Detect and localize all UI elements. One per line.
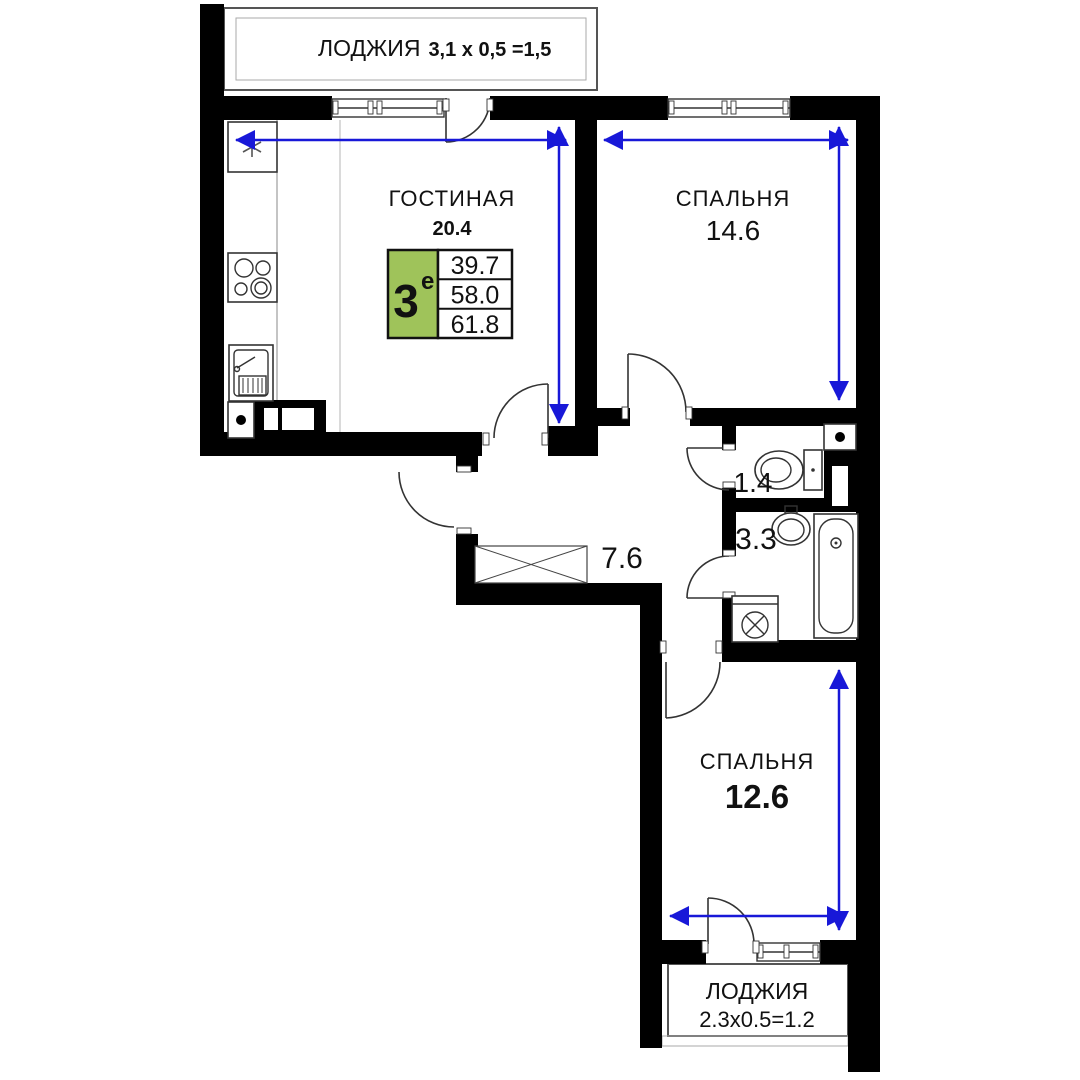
door-jamb <box>542 433 548 445</box>
bedroom1-name: СПАЛЬНЯ <box>676 186 791 211</box>
loggia-top-name: ЛОДЖИЯ <box>318 35 420 61</box>
bathtub-icon <box>814 514 858 638</box>
bathroom-area: 3.3 <box>735 523 777 556</box>
wall-bedroom2-bottom-b <box>820 940 856 964</box>
window-bedroom2 <box>757 943 820 961</box>
loggia-bottom-outline <box>662 964 848 1046</box>
door-bedroom2 <box>660 641 722 718</box>
living-room-area: 20.4 <box>433 218 473 240</box>
window-cap <box>333 101 338 114</box>
door-swing-arc <box>446 98 490 142</box>
floor-number-sup: е <box>421 268 434 295</box>
wall-top-b <box>490 96 668 120</box>
window-mullion <box>722 101 727 114</box>
door-jamb <box>457 466 471 472</box>
area-value-apartment: 58.0 <box>451 282 500 310</box>
wardrobe-icon <box>475 546 587 583</box>
area-value-total: 61.8 <box>451 311 500 339</box>
door-jamb <box>622 407 628 419</box>
door-swing-arc <box>628 354 686 412</box>
door-bathroom <box>687 550 735 598</box>
washing-machine-icon <box>732 596 778 642</box>
door-jamb <box>723 444 735 450</box>
wall-top-a <box>200 96 332 120</box>
loggia-bottom-name: ЛОДЖИЯ <box>706 978 808 1004</box>
window-cap <box>437 101 442 114</box>
bedroom2-area: 12.6 <box>725 778 789 815</box>
stove-body <box>228 253 277 302</box>
loggia-top-label: ЛОДЖИЯ3,1 х 0,5 =1,5 <box>318 35 551 61</box>
door-jamb <box>702 941 708 953</box>
wall-bath-a <box>722 510 736 556</box>
wall-bedroom2-top <box>722 640 880 662</box>
living-room-name: ГОСТИНАЯ <box>389 186 516 211</box>
loggia-bottom-parapet <box>662 1036 848 1046</box>
window-bedroom1 <box>668 99 790 117</box>
door-balcony-bedroom2 <box>702 898 759 953</box>
room-labels: ЛОДЖИЯ3,1 х 0,5 =1,5 ГОСТИНАЯ 20.4 СПАЛЬ… <box>318 35 815 1032</box>
wall-left <box>200 4 224 456</box>
wall-interior-living-bedroom <box>575 117 597 414</box>
washer-body <box>732 596 778 642</box>
wall-hall-bottom <box>456 583 662 605</box>
apartment-info-badge: 3 е 39.7 58.0 61.8 <box>388 250 512 339</box>
fridge-icon <box>228 122 277 172</box>
window-cap <box>813 945 818 958</box>
kitchen-fixtures <box>228 120 340 432</box>
window-mullion <box>377 101 382 114</box>
door-jamb <box>483 433 489 445</box>
window-living <box>332 99 444 117</box>
door-jamb <box>443 99 449 111</box>
door-jamb <box>660 641 666 653</box>
door-wc <box>687 444 735 490</box>
door-bedroom1 <box>622 354 692 419</box>
door-living-hall <box>483 384 548 445</box>
bath-vent-dot-icon <box>835 432 845 442</box>
kitchen-sink-icon <box>229 345 273 401</box>
door-swing-arc <box>494 384 548 438</box>
window-mullion <box>731 101 736 114</box>
wall-bedroom2-left <box>640 583 662 1048</box>
bedroom2-name: СПАЛЬНЯ <box>700 749 815 774</box>
wall-bedroom2-bottom-a <box>640 940 706 964</box>
door-jamb <box>723 550 735 556</box>
hall-area: 7.6 <box>601 542 643 575</box>
window-mullion <box>368 101 373 114</box>
bathtub-rim <box>814 514 858 638</box>
door-jamb <box>716 641 722 653</box>
toilet-button <box>811 468 815 472</box>
wc-area: 1.4 <box>734 467 773 498</box>
wall-right-upper <box>856 96 880 944</box>
kitchen-duct-slot <box>264 408 314 430</box>
floor-plan-page: 3 е 39.7 58.0 61.8 ЛОДЖИЯ3,1 х 0,5 =1,5 … <box>0 0 1080 1080</box>
door-balcony-living <box>443 98 493 142</box>
door-jamb <box>457 528 471 534</box>
bathtub-drain-dot <box>835 542 838 545</box>
door-swing-arc <box>666 662 720 718</box>
floor-plan: 3 е 39.7 58.0 61.8 ЛОДЖИЯ3,1 х 0,5 =1,5 … <box>0 0 1080 1080</box>
window-cap <box>669 101 674 114</box>
door-jamb <box>686 407 692 419</box>
duct-shaft-slot <box>832 466 848 506</box>
door-swing-arc <box>708 898 754 944</box>
sanitary-fixtures <box>475 450 858 642</box>
loggia-bottom-dims: 2.3х0.5=1.2 <box>699 1007 815 1032</box>
kitchen-vent-dot-icon <box>236 415 246 425</box>
door-jamb <box>753 941 759 953</box>
floor-number: 3 <box>393 275 419 327</box>
window-mullion <box>784 945 789 958</box>
wall-wc-bath-divider <box>736 498 824 512</box>
stove-icon <box>228 253 277 302</box>
area-value-living-total: 39.7 <box>451 252 500 280</box>
door-entrance <box>399 466 471 534</box>
window-cap <box>783 101 788 114</box>
wall-living-pillar <box>548 426 598 456</box>
door-jamb <box>487 99 493 111</box>
loggia-top-dims: 3,1 х 0,5 =1,5 <box>428 39 551 61</box>
bedroom1-area: 14.6 <box>706 215 761 246</box>
door-swing-arc <box>399 472 454 527</box>
